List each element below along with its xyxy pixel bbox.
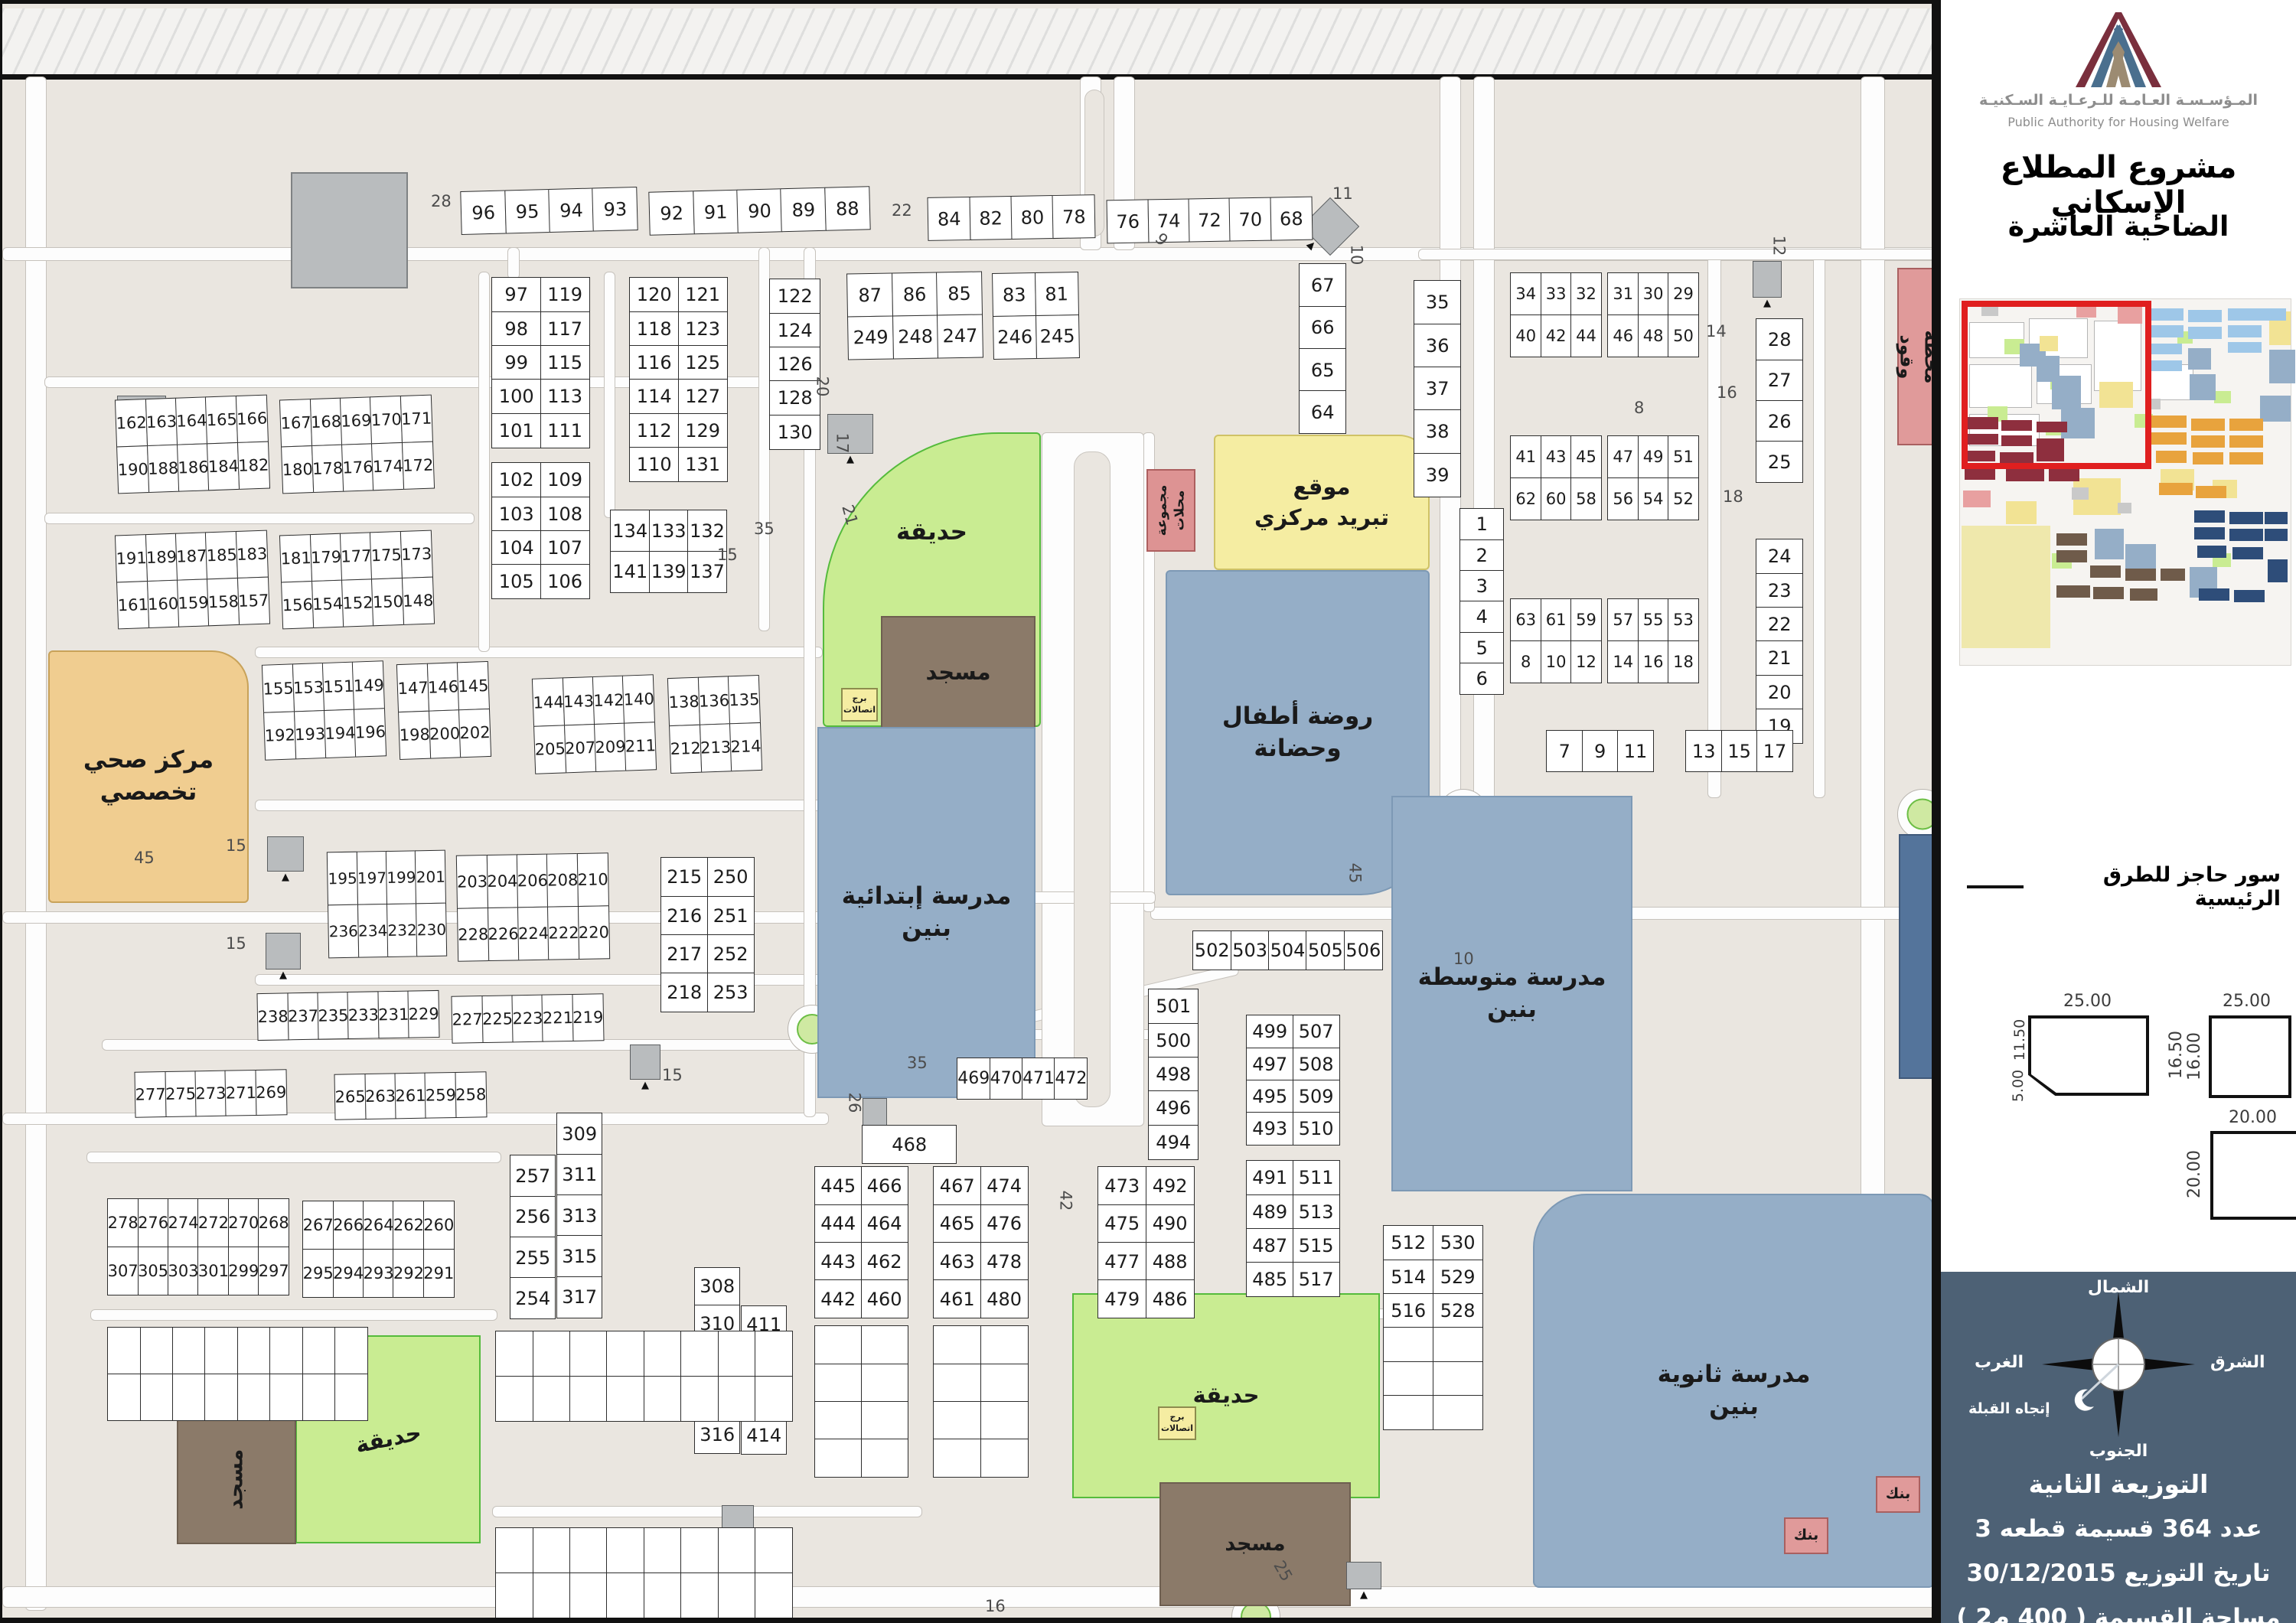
plot-cell: 267: [302, 1201, 334, 1250]
plot-cell: 10: [1541, 640, 1572, 683]
plot-cell: 157: [237, 576, 270, 624]
plot-cell: 42: [1541, 314, 1572, 357]
utility-box: [1753, 261, 1782, 298]
plot-block: 67666564: [1300, 264, 1345, 434]
plot-cell: 209: [594, 722, 627, 771]
plot-block: 122124126128130: [770, 279, 820, 449]
plot-cell: 194: [324, 709, 357, 758]
plot-block: 468: [863, 1126, 956, 1163]
plot-cell: 175: [370, 531, 403, 579]
plot-cell: [980, 1439, 1029, 1478]
plot-cell: 55: [1638, 598, 1669, 641]
plot-cell: 498: [1148, 1057, 1199, 1092]
plot-cell: [107, 1374, 141, 1421]
plot-cell: 468: [862, 1125, 957, 1164]
plot-cell: 56: [1607, 477, 1639, 520]
road: [255, 800, 827, 811]
plot-block: [934, 1326, 1028, 1478]
plot-cell: 502: [1192, 930, 1231, 970]
plot-cell: [644, 1572, 682, 1618]
plot-cell: 104: [491, 530, 541, 565]
plot-block: 120121118123116125114127112129110131: [630, 278, 727, 481]
plot-cell: 529: [1433, 1260, 1483, 1295]
plot-cell: 221: [542, 994, 574, 1042]
plot-cell: [680, 1527, 719, 1573]
plot-cell: 510: [1293, 1112, 1340, 1146]
road: [44, 513, 475, 524]
plot-cell: 208: [546, 853, 579, 908]
plot-cell: 20: [1756, 675, 1803, 710]
plot-cell: 120: [629, 277, 679, 312]
plot-cell: 12: [1570, 640, 1602, 683]
plot-cell: 3: [1459, 570, 1504, 602]
plot-cell: 180: [281, 445, 314, 494]
plot-cell: [755, 1331, 793, 1377]
plot-cell: 277: [135, 1071, 167, 1118]
lot-diagram-2: [2209, 1015, 2291, 1098]
road: [1418, 249, 1938, 260]
plot-cell: 230: [416, 902, 447, 957]
minimap-block: [2188, 348, 2211, 370]
plot-cell: [606, 1376, 644, 1422]
minimap-block: [2197, 546, 2226, 558]
minimap-block: [2265, 512, 2288, 524]
plot-cell: 218: [660, 973, 708, 1012]
road-dimension-label: 45: [134, 849, 155, 867]
plot-cell: [680, 1572, 719, 1618]
plot-cell: 278: [107, 1198, 139, 1247]
plot-cell: [495, 1376, 533, 1422]
plot-cell: 256: [510, 1196, 556, 1238]
plot-cell: 461: [933, 1279, 981, 1318]
plot-cell: 26: [1756, 400, 1803, 442]
plot-cell: 254: [510, 1277, 556, 1319]
plot-cell: 467: [933, 1166, 981, 1205]
plot-cell: 480: [980, 1279, 1029, 1318]
plot-cell: 202: [458, 709, 491, 758]
plot-cell: 206: [517, 854, 549, 908]
plot-block: 195197199201236234232230: [328, 851, 447, 957]
plot-cell: 97: [491, 277, 541, 312]
lot1-left-lower-label: 5.00: [2010, 1070, 2027, 1102]
plot-cell: 234: [357, 904, 389, 958]
plot-cell: 504: [1268, 930, 1307, 970]
plot-cell: 52: [1668, 477, 1699, 520]
plot-cell: [644, 1376, 682, 1422]
plot-cell: [814, 1364, 862, 1403]
plot-cell: 212: [669, 724, 702, 773]
plot-cell: 135: [728, 675, 761, 724]
utility-box: [1346, 1562, 1381, 1589]
road-dimension-label: 18: [1723, 487, 1743, 506]
plot-block: 499507497508495509493510: [1247, 1015, 1339, 1146]
plot-cell: [107, 1327, 141, 1374]
plot-cell: 130: [769, 415, 820, 450]
org-name-arabic: المـؤسـسـة العـامـة للـرعـايـة السـكنيـة: [1941, 92, 2296, 109]
plot-block: 502503504505506: [1193, 931, 1382, 970]
plot-cell: 65: [1299, 348, 1346, 392]
phaw-logo-icon: [2068, 8, 2169, 87]
plot-cell: [1433, 1327, 1483, 1362]
minimap-block: [2268, 559, 2288, 582]
plot-cell: 505: [1306, 930, 1345, 970]
plot-cell: 106: [540, 564, 590, 599]
kindergarten-area: روضة أطفال وحضانة: [1166, 570, 1430, 895]
plot-cell: 146: [426, 663, 459, 712]
plot-cell: 249: [847, 315, 894, 360]
plot-cell: 169: [340, 397, 373, 445]
plot-cell: 198: [398, 710, 431, 759]
plot-cell: 246: [993, 315, 1037, 360]
highway-band: [2, 8, 1938, 80]
compass-north-label: الشمال: [1941, 1278, 2296, 1297]
road-dimension-label: 15: [226, 836, 246, 855]
plot-cell: 92: [649, 191, 695, 236]
plot-cell: 167: [279, 399, 312, 447]
minimap-block: [2125, 569, 2156, 581]
road-dimension-label: 28: [431, 192, 452, 210]
plot-block: 267266264262260295294293292291: [303, 1201, 454, 1297]
plot-cell: [718, 1331, 756, 1377]
plot-cell: [814, 1439, 862, 1478]
plot-cell: 160: [147, 579, 180, 627]
minimap-block: [1965, 468, 1995, 480]
plot-cell: 6: [1459, 663, 1504, 695]
minimap-block: [2159, 483, 2193, 495]
plot-cell: 30: [1638, 272, 1669, 315]
plot-cell: 176: [341, 443, 374, 491]
plot-cell: 260: [423, 1201, 455, 1250]
plot-cell: 103: [491, 497, 541, 532]
plot-cell: 46: [1607, 314, 1639, 357]
road-dimension-label: 35: [754, 520, 775, 538]
plot-cell: [204, 1374, 238, 1421]
plot-block: 215250216251217252218253: [661, 858, 754, 1012]
minimap-block: [2269, 350, 2295, 383]
info-line-4: مساحة القسيمة ( 400 م2 ): [1941, 1604, 2296, 1623]
plot-cell: 80: [1011, 195, 1055, 240]
plot-cell: 443: [814, 1242, 862, 1281]
health-center-area-label: مركز صحي تخصصي: [83, 745, 214, 809]
plot-cell: [495, 1527, 533, 1573]
legend-label: سور حاجز للطرق الرئيسية: [2024, 863, 2281, 911]
plot-block: 203204206208210228226224222220: [457, 853, 609, 960]
minimap-block: [2191, 419, 2225, 431]
plot-cell: 148: [402, 576, 435, 624]
lot2-width-label: 25.00: [2223, 992, 2271, 1011]
plot-cell: 72: [1189, 198, 1231, 243]
plot-block: 84828078: [928, 195, 1096, 240]
plot-cell: [1433, 1395, 1483, 1430]
park-area-1-label: حديقة: [896, 517, 967, 549]
minimap-block: [2196, 486, 2226, 498]
plot-cell: 222: [547, 906, 579, 960]
qibla-label: إتجاه القبلة: [1968, 1400, 2050, 1417]
plot-cell: 140: [622, 674, 655, 723]
org-name-english: Public Authority for Housing Welfare: [1941, 115, 2296, 129]
plot-cell: 235: [317, 992, 349, 1040]
plot-cell: [237, 1327, 271, 1374]
minimap-block: [2265, 529, 2288, 541]
plot-cell: [495, 1331, 533, 1377]
plot-cell: 32: [1570, 272, 1602, 315]
plot-block: 8381246245: [993, 272, 1079, 359]
plot-block: 575553141618: [1608, 599, 1698, 683]
plot-cell: 158: [207, 578, 240, 626]
plot-cell: 178: [311, 444, 344, 492]
plot-cell: 156: [281, 581, 314, 629]
plot-cell: 216: [660, 896, 708, 936]
plot-cell: 173: [400, 530, 433, 578]
plot-cell: 93: [592, 187, 638, 232]
plot-cell: 152: [341, 578, 374, 627]
plot-cell: 465: [933, 1204, 981, 1243]
plot-cell: 464: [861, 1204, 908, 1243]
plot-cell: 168: [310, 398, 343, 446]
plot-block: 123456: [1460, 509, 1503, 694]
plot-cell: 225: [481, 996, 514, 1044]
plot-cell: 210: [577, 852, 609, 907]
plot-cell: 497: [1246, 1048, 1293, 1081]
minimap-block: [2156, 451, 2187, 463]
plot-cell: 108: [540, 497, 590, 532]
park-area-3-label: حديقة: [1193, 1380, 1260, 1410]
plot-block: 138136135212213214: [668, 676, 762, 773]
plot-cell: 442: [814, 1279, 862, 1318]
plot-cell: 266: [333, 1201, 364, 1250]
plot-cell: 223: [511, 995, 543, 1043]
plot-cell: 192: [263, 711, 296, 760]
plot-cell: 486: [1146, 1279, 1195, 1318]
plot-cell: [814, 1401, 862, 1440]
plot-cell: 84: [928, 197, 971, 241]
plot-cell: 245: [1035, 314, 1080, 359]
plot-cell: 177: [340, 533, 373, 581]
minimap-block: [2228, 308, 2262, 321]
plot-cell: 251: [707, 896, 755, 936]
plot-cell: 485: [1246, 1262, 1293, 1297]
road-dimension-label: 15: [717, 546, 738, 564]
sidebar: المـؤسـسـة العـامـة للـرعـايـة السـكنيـة…: [1941, 0, 2296, 1623]
plot-block: 7911: [1547, 731, 1653, 771]
plot-cell: 414: [741, 1416, 787, 1455]
plot-cell: 149: [352, 660, 385, 709]
plot-cell: 29: [1668, 272, 1699, 315]
plot-cell: 67: [1299, 263, 1346, 307]
plot-cell: [606, 1331, 644, 1377]
plot-block: [815, 1326, 908, 1478]
plot-cell: 317: [556, 1276, 602, 1318]
plot-block: 238237235233231229: [257, 991, 439, 1041]
plot-cell: 247: [937, 314, 983, 358]
minimap-block: [1963, 490, 1991, 507]
road: [255, 647, 823, 658]
lot1-width-label: 25.00: [2063, 992, 2112, 1011]
plot-cell: 226: [488, 907, 520, 961]
plot-block: 131517: [1686, 731, 1792, 771]
plot-cell: 183: [236, 530, 269, 578]
plot-cell: 4: [1459, 601, 1504, 633]
road-dimension-label: 35: [907, 1054, 928, 1072]
plot-cell: 511: [1293, 1160, 1340, 1195]
plot-cell: 66: [1299, 306, 1346, 350]
plot-cell: 308: [694, 1267, 740, 1305]
plot-cell: 238: [257, 993, 289, 1041]
plot-cell: 134: [610, 510, 650, 552]
plot-cell: 102: [491, 462, 541, 497]
plot-cell: [680, 1331, 719, 1377]
plot-cell: 51: [1668, 435, 1699, 478]
plot-cell: [814, 1325, 862, 1364]
plot-cell: 14: [1607, 640, 1639, 683]
plot-cell: 313: [556, 1194, 602, 1237]
plot-cell: 63: [1510, 598, 1541, 641]
plot-block: 467474465476463478461480: [934, 1167, 1028, 1318]
plot-cell: 24: [1756, 539, 1803, 574]
plot-cell: 95: [504, 189, 550, 234]
plot-cell: [269, 1374, 303, 1421]
road: [25, 77, 47, 1611]
minimap-block: [2229, 435, 2263, 448]
plot-cell: 479: [1097, 1279, 1146, 1318]
plot-cell: 515: [1293, 1228, 1340, 1263]
bank-area-1-label: بنك: [1886, 1484, 1911, 1504]
road-dimension-label: 15: [226, 934, 246, 953]
plot-cell: 47: [1607, 435, 1639, 478]
plot-cell: 292: [393, 1249, 424, 1298]
plot-cell: 53: [1668, 598, 1699, 641]
plot-cell: 7: [1546, 730, 1583, 772]
plot-cell: 219: [572, 993, 604, 1041]
plot-cell: [933, 1401, 981, 1440]
lot1-left-upper-label: 11.50: [2011, 1019, 2028, 1061]
plot-cell: 474: [980, 1166, 1029, 1205]
plot-block: 278276274272270268307305303301299297: [108, 1199, 289, 1295]
map-frame-divider: [1932, 0, 1941, 1623]
plot-cell: 90: [736, 188, 782, 233]
plot-cell: 220: [578, 905, 610, 960]
plot-cell: 270: [228, 1198, 259, 1247]
plot-cell: 119: [540, 277, 590, 312]
site-plan-sheet: مركز صحي تخصصيحديقةمسجدمدرسة إبتدائية بن…: [0, 0, 2296, 1623]
plot-cell: 301: [197, 1247, 229, 1295]
plot-cell: 237: [287, 992, 319, 1041]
plot-cell: 33: [1541, 272, 1572, 315]
plot-cell: 184: [207, 442, 240, 490]
plot-cell: 170: [370, 396, 403, 444]
plot-cell: 489: [1246, 1194, 1293, 1230]
plot-cell: 496: [1148, 1090, 1199, 1126]
minimap-block: [2260, 396, 2291, 422]
plot-cell: [755, 1572, 793, 1618]
plot-cell: 43: [1541, 435, 1572, 478]
road-dimension-label: 12: [1769, 236, 1788, 256]
road-dimension-label: 16: [1717, 383, 1737, 402]
plot-cell: [302, 1327, 336, 1374]
plot-cell: 118: [629, 311, 679, 347]
plot-cell: 213: [700, 723, 732, 772]
road-dimension-label: 20: [813, 376, 831, 397]
plot-cell: 466: [861, 1166, 908, 1205]
plot-cell: 112: [629, 413, 679, 448]
district-title: الضاحية العاشرة: [1941, 211, 2296, 243]
plot-cell: [933, 1325, 981, 1364]
minimap-block: [2006, 469, 2044, 481]
plot-cell: 305: [138, 1247, 169, 1295]
plot-cell: 40: [1510, 314, 1541, 357]
road-dimension-label: 10: [1453, 950, 1474, 968]
plot-cell: 228: [457, 908, 489, 962]
plot-block: 63615981012: [1511, 599, 1601, 683]
plot-cell: 147: [396, 663, 429, 712]
plot-cell: 145: [457, 661, 490, 710]
plot-cell: 528: [1433, 1293, 1483, 1328]
minimap-block: [2229, 529, 2263, 541]
plot-cell: 124: [769, 313, 820, 348]
plot-cell: 248: [892, 314, 939, 359]
plot-cell: 476: [980, 1204, 1029, 1243]
plot-block: 134133132141139137: [611, 510, 726, 592]
utility-box: [267, 836, 304, 872]
plot-cell: 190: [116, 445, 149, 494]
plot-cell: 94: [548, 188, 594, 233]
plot-cell: 263: [364, 1074, 396, 1120]
plot-cell: 200: [429, 709, 461, 758]
plot-cell: 295: [302, 1249, 334, 1298]
plot-cell: 45: [1570, 435, 1602, 478]
plot-cell: 37: [1414, 367, 1461, 411]
wall-line-icon: [1967, 885, 2024, 888]
compass-east-label: الشرق: [2210, 1353, 2265, 1372]
plot-cell: [569, 1527, 608, 1573]
plot-cell: 34: [1510, 272, 1541, 315]
plot-cell: 229: [408, 990, 440, 1038]
utility-box: [266, 933, 301, 970]
plot-cell: 473: [1097, 1166, 1146, 1205]
plot-cell: 64: [1299, 390, 1346, 434]
plot-cell: [569, 1572, 608, 1618]
plot-block: 167168169170171180178176174172: [280, 396, 434, 494]
plot-cell: 23: [1756, 573, 1803, 608]
plot-cell: [334, 1374, 368, 1421]
plot-cell: 127: [678, 379, 728, 414]
plot-cell: 70: [1229, 197, 1272, 242]
minimap-block: [2194, 527, 2225, 539]
plot-cell: 469: [957, 1058, 990, 1100]
plot-cell: 252: [707, 934, 755, 974]
plot-cell: 250: [707, 857, 755, 897]
plot-cell: [495, 1572, 533, 1618]
minimap-block: [2095, 529, 2124, 559]
plot-block: 445466444464443462442460: [815, 1167, 908, 1318]
plot-cell: [644, 1331, 682, 1377]
plot-cell: 255: [510, 1237, 556, 1279]
secondary-school-area: مدرسة ثانوية بنين: [1533, 1194, 1935, 1588]
plot-cell: [302, 1374, 336, 1421]
plot-cell: 125: [678, 345, 728, 380]
plot-cell: 470: [990, 1058, 1023, 1100]
plot-cell: 115: [540, 345, 590, 380]
mosque-area-1-label: مسجد: [925, 657, 990, 687]
plot-cell: 530: [1433, 1225, 1483, 1260]
plot-cell: 99: [491, 345, 541, 380]
plot-cell: [718, 1527, 756, 1573]
minimap-block: [2161, 569, 2185, 581]
plot-cell: 264: [363, 1201, 394, 1250]
minimap-block: [2199, 588, 2229, 601]
plot-cell: 217: [660, 934, 708, 974]
plot-cell: [861, 1439, 908, 1478]
